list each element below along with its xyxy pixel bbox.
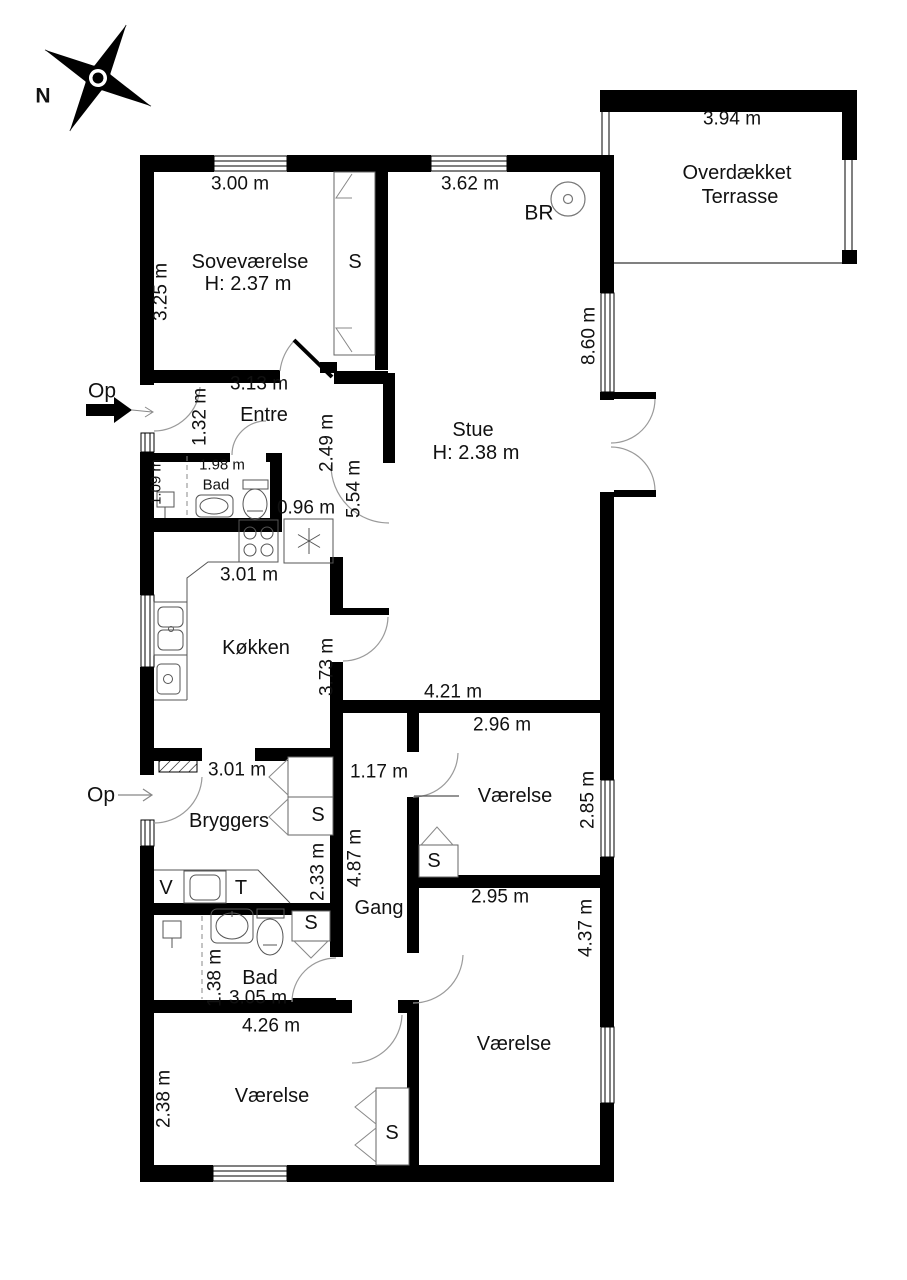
- room-label-gang: Gang: [355, 898, 404, 918]
- dim-entre-depth: 2.49 m: [318, 414, 337, 472]
- room-label-vaerelse-mid: Værelse: [478, 786, 552, 806]
- door-terrace-french-left: [611, 399, 655, 443]
- room-label-kokken: Køkken: [222, 638, 290, 658]
- window-vaerelse-se-east: [601, 1027, 614, 1103]
- entrance-arrow-bryggers: [118, 789, 152, 801]
- window-soveverelse-north: [214, 156, 287, 171]
- kitchen-sink-icon: [154, 602, 187, 655]
- door-terrace-french-right: [611, 447, 655, 490]
- door-kokken: [343, 617, 388, 661]
- dryer-label: T: [235, 878, 247, 898]
- dim-bryggers-width: 3.01 m: [208, 761, 266, 780]
- window-bryggers-west: [141, 820, 154, 846]
- toilet-icon-upper: [243, 480, 268, 519]
- entrance-label-north: Op: [88, 381, 116, 402]
- entrance-label-bryggers: Op: [87, 785, 115, 806]
- small-appliance-icon: [157, 664, 180, 694]
- door-vaerelse-sw: [352, 1015, 402, 1063]
- dim-bryggers-depth: 2.33 m: [309, 843, 328, 901]
- window-vaerelse-sw-south: [213, 1166, 287, 1181]
- closet-label-soveverelse: S: [348, 252, 361, 272]
- compass-icon: [17, 0, 179, 159]
- window-stue-north: [431, 156, 507, 171]
- dim-bad-upper-width: 1.98 m: [199, 458, 245, 473]
- closet-label-vaerelse-sw: S: [385, 1123, 398, 1143]
- compass-north-label: N: [35, 86, 50, 107]
- dim-kokken-depth: 3.73 m: [318, 638, 337, 696]
- dim-vaerelse-sw-depth: 2.38 m: [155, 1070, 174, 1128]
- room-label-terrasse-line1: Overdækket: [683, 163, 792, 183]
- dim-stue-north: 3.62 m: [441, 175, 499, 194]
- room-label-stue: Stue: [452, 420, 493, 440]
- dim-stue-south: 4.21 m: [424, 683, 482, 702]
- closet-label-vaerelse-mid: S: [427, 851, 440, 871]
- room-label-vaerelse-se: Værelse: [477, 1034, 551, 1054]
- dim-soveverelse-width: 3.00 m: [211, 175, 269, 194]
- dim-bad-lower-width: 3.05 m: [229, 989, 287, 1008]
- dim-bad-upper-west: 1.09 m: [149, 459, 164, 505]
- dim-soveverelse-depth: 3.25 m: [152, 263, 171, 321]
- dim-vaerelse-mid-depth: 2.85 m: [579, 771, 598, 829]
- door-leaf-soveverelse: [294, 340, 332, 377]
- dim-vaerelse-sw-width: 4.26 m: [242, 1017, 300, 1036]
- window-stue-east: [601, 293, 614, 392]
- drain-icon-lower: [163, 921, 181, 948]
- room-label-bad-upper: Bad: [203, 478, 230, 493]
- dim-passage-width: 0.96 m: [277, 499, 335, 518]
- dim-bad-lower-shower: 1.38 m: [206, 949, 225, 1007]
- dim-terrasse-width: 3.94 m: [703, 110, 761, 129]
- dim-entre-width: 3.13 m: [230, 375, 288, 394]
- dim-vaerelse-mid-width: 2.96 m: [473, 716, 531, 735]
- freezer-bryggers: [269, 757, 333, 797]
- dim-vaerelse-se-width: 2.95 m: [471, 888, 529, 907]
- kitchen-fixtures: [154, 519, 333, 700]
- ceiling-height-stue: H: 2.38 m: [433, 443, 520, 463]
- door-bad-upper: [232, 421, 266, 455]
- dim-stue-east: 8.60 m: [580, 307, 599, 365]
- room-label-entre: Entre: [240, 405, 288, 425]
- room-label-soveverelse: Soveværelse: [192, 252, 309, 272]
- closet-vaerelse-sw: [355, 1088, 409, 1165]
- room-label-bryggers: Bryggers: [189, 811, 269, 831]
- door-vaerelse-se: [413, 955, 463, 1003]
- door-bad-lower: [292, 958, 336, 1002]
- dim-passage-length: 5.54 m: [345, 460, 364, 518]
- washing-machine-icon: [184, 871, 226, 903]
- window-entre-west: [141, 433, 154, 452]
- entrance-mat: [159, 756, 197, 772]
- dim-vaerelse-se-depth: 4.37 m: [577, 899, 596, 957]
- toilet-icon-lower: [257, 909, 284, 955]
- door-vaerelse-mid: [413, 753, 458, 797]
- window-kokken-west: [141, 595, 154, 667]
- dim-gang-length: 4.87 m: [346, 829, 365, 887]
- window-vaerelse-mid-east: [601, 780, 614, 857]
- room-label-terrasse-line2: Terrasse: [702, 187, 779, 207]
- smoke-detector-label: BR: [524, 203, 553, 224]
- washer-label: V: [159, 878, 172, 898]
- closet-label-bad-lower: S: [304, 913, 317, 933]
- fridge-icon: [284, 519, 333, 563]
- laundry-counter-edge: [154, 870, 290, 903]
- door-soveverelse: [280, 341, 294, 371]
- dim-kokken-width: 3.01 m: [220, 566, 278, 585]
- room-label-vaerelse-sw: Værelse: [235, 1086, 309, 1106]
- room-label-bad-lower: Bad: [242, 968, 278, 988]
- dim-entre-west: 1.32 m: [191, 388, 210, 446]
- smoke-detector-icon: [551, 182, 585, 216]
- sink-icon-upper: [196, 495, 233, 517]
- closet-label-bryggers: S: [311, 805, 324, 825]
- floorplan: N Op Op BR Soveværelse H: 2.37 m Stue H:…: [0, 0, 907, 1280]
- dim-gang-width: 1.17 m: [350, 763, 408, 782]
- ceiling-height-soveverelse: H: 2.37 m: [205, 274, 292, 294]
